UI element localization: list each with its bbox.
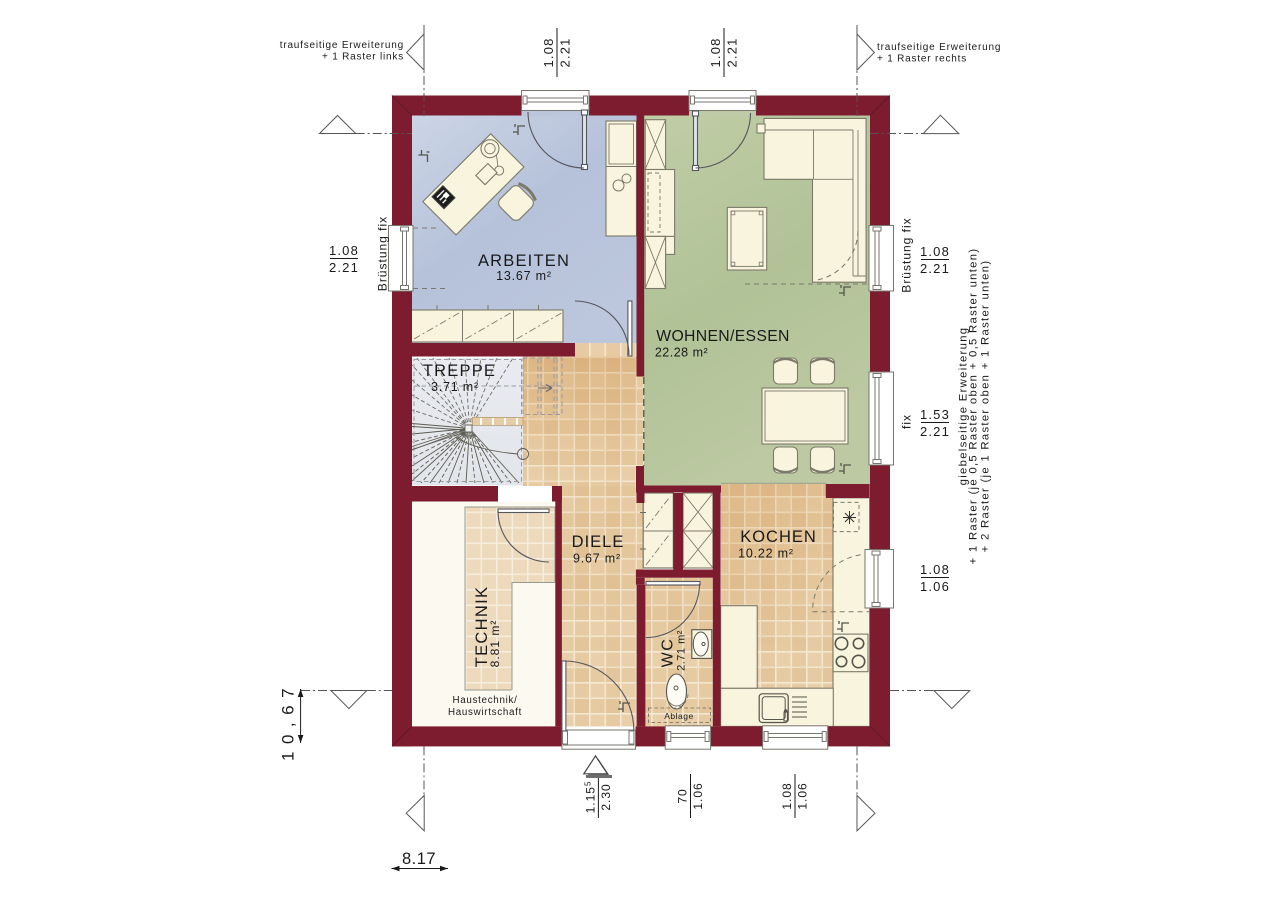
svg-text:2.21: 2.21 [558,37,573,67]
svg-text:+ 1 Raster rechts: + 1 Raster rechts [877,54,967,65]
svg-text:1.53: 1.53 [920,407,950,422]
svg-text:Ablage: Ablage [664,711,693,721]
svg-text:1.08: 1.08 [541,37,556,67]
svg-text:WC: WC [660,638,677,668]
svg-text:KOCHEN: KOCHEN [740,528,817,546]
svg-text:1.155: 1.155 [583,781,598,814]
svg-text:13.67 m²: 13.67 m² [496,269,552,283]
svg-text:8.81 m²: 8.81 m² [488,620,502,668]
svg-text:8.17: 8.17 [402,850,436,868]
svg-text:1.08: 1.08 [708,37,723,67]
svg-text:2.21: 2.21 [920,261,950,276]
svg-text:3.71 m²: 3.71 m² [431,380,479,394]
svg-text:DIELE: DIELE [572,533,625,551]
svg-text:Hauswirtschaft: Hauswirtschaft [448,707,522,718]
svg-text:1.08: 1.08 [780,782,794,809]
svg-text:+ 1 Raster (je 0,5 Raster oben: + 1 Raster (je 0,5 Raster oben + 0,5 Ras… [968,248,980,565]
svg-text:9.67 m²: 9.67 m² [573,552,621,566]
svg-text:2.21: 2.21 [329,260,359,275]
svg-text:1.06: 1.06 [796,782,810,809]
svg-text:22.28 m²: 22.28 m² [655,346,708,360]
svg-text:fix: fix [900,414,914,429]
svg-text:1.08: 1.08 [920,562,950,577]
svg-text:TREPPE: TREPPE [423,362,496,380]
svg-text:1.06: 1.06 [691,782,705,809]
svg-text:WOHNEN/ESSEN: WOHNEN/ESSEN [656,328,790,345]
svg-text:1.08: 1.08 [329,243,359,258]
svg-text:2.30: 2.30 [599,783,613,810]
svg-text:70: 70 [676,788,690,803]
svg-text:Brüstung fix: Brüstung fix [376,216,390,291]
svg-text:2.71 m²: 2.71 m² [676,630,688,671]
svg-text:1.08: 1.08 [920,244,950,259]
svg-text:+ 1 Raster links: + 1 Raster links [322,52,404,63]
svg-text:+ 2 Raster (je 1 Raster oben +: + 2 Raster (je 1 Raster oben + 1 Raster … [980,260,992,553]
svg-text:2.21: 2.21 [920,424,950,439]
svg-text:10.22 m²: 10.22 m² [738,547,794,561]
svg-text:2.21: 2.21 [725,37,740,67]
svg-text:1.06: 1.06 [920,579,950,594]
svg-text:Brüstung fix: Brüstung fix [900,217,914,292]
svg-text:ARBEITEN: ARBEITEN [478,252,570,270]
svg-text:traufseitige Erweiterung: traufseitige Erweiterung [877,42,1001,53]
svg-text:10,67: 10,67 [279,681,298,761]
svg-text:Haustechnik/: Haustechnik/ [452,695,517,706]
svg-text:traufseitige Erweiterung: traufseitige Erweiterung [280,40,404,51]
